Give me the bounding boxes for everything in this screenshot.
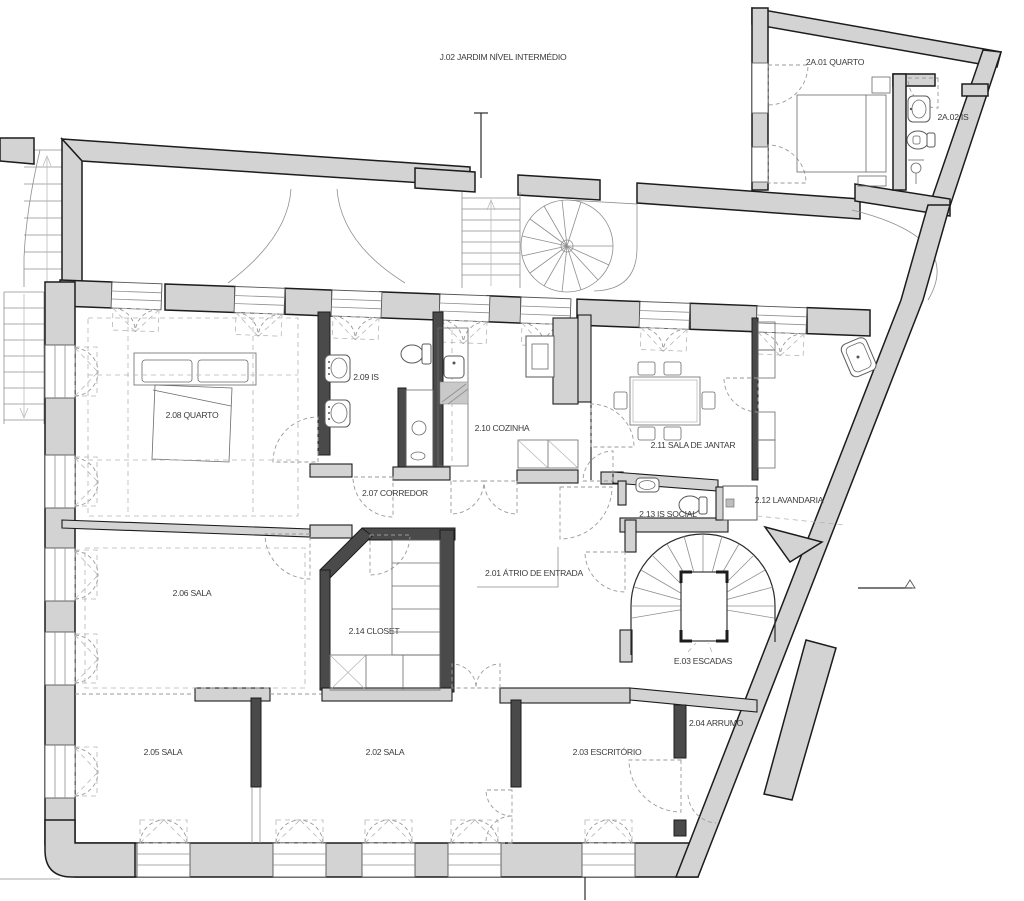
room-label-sala2: 2.02 SALA (366, 747, 405, 757)
room-label-bedroom: 2.08 QUARTO (166, 410, 219, 420)
room-label-atrium: 2.01 ÁTRIO DE ENTRADA (485, 568, 583, 578)
room-label-sala5: 2.05 SALA (144, 747, 183, 757)
annex-toilet-icon (907, 131, 935, 149)
room-label-dining: 2.11 SALA DE JANTAR (651, 440, 736, 450)
annex-washbasin-icon (908, 96, 930, 122)
room-label-kitchen: 2.10 COZINHA (475, 423, 530, 433)
room-label-annex-bath: 2A.02 IS (938, 112, 969, 122)
room-label-garden: J.02 JARDIM NÍVEL INTERMÉDIO (440, 52, 567, 62)
room-label-stairs: E.03 ESCADAS (674, 656, 733, 666)
room-label-storage: 2.04 ARRUMO (689, 718, 744, 728)
garden-stair-flight-lower (4, 292, 44, 424)
terrace-stair-flight-icon (462, 192, 520, 288)
sala6-ceiling-grid (85, 548, 305, 688)
terrace-walls (0, 138, 860, 284)
room-label-sala6: 2.06 SALA (173, 588, 212, 598)
dining-table-icon (614, 362, 715, 440)
bedroom-bed-icon (134, 353, 256, 462)
interior-walls (62, 312, 775, 843)
section-leader-line (474, 113, 488, 178)
room-label-closet: 2.14 CLOSET (349, 626, 401, 636)
room-label-laundry: 2.12 LAVANDARIA (755, 495, 824, 505)
spiral-stair-icon (521, 200, 637, 292)
room-label-bath: 2.09 IS (353, 372, 379, 382)
wardrobe-shelf-icon (330, 540, 440, 690)
room-label-corridor: 2.07 CORREDOR (362, 488, 428, 498)
bath-fixtures (325, 344, 433, 466)
room-label-annex-bedroom: 2A.01 QUARTO (806, 57, 865, 67)
annex-shower-icon (908, 160, 924, 184)
annex-bed-icon (797, 77, 890, 186)
room-label-office: 2.03 ESCRITÓRIO (573, 747, 642, 757)
main-walls (45, 205, 950, 877)
main-stair-icon (631, 534, 775, 655)
floor-plan: J.02 JARDIM NÍVEL INTERMÉDIO 2A.01 QUART… (0, 0, 1024, 901)
atrium-beam-line (477, 547, 558, 587)
room-label-wc: 2.13 IS SOCIAL (639, 509, 697, 519)
floor-plan-canvas: J.02 JARDIM NÍVEL INTERMÉDIO 2A.01 QUART… (0, 0, 1024, 901)
datum-marker-icon (858, 580, 915, 588)
